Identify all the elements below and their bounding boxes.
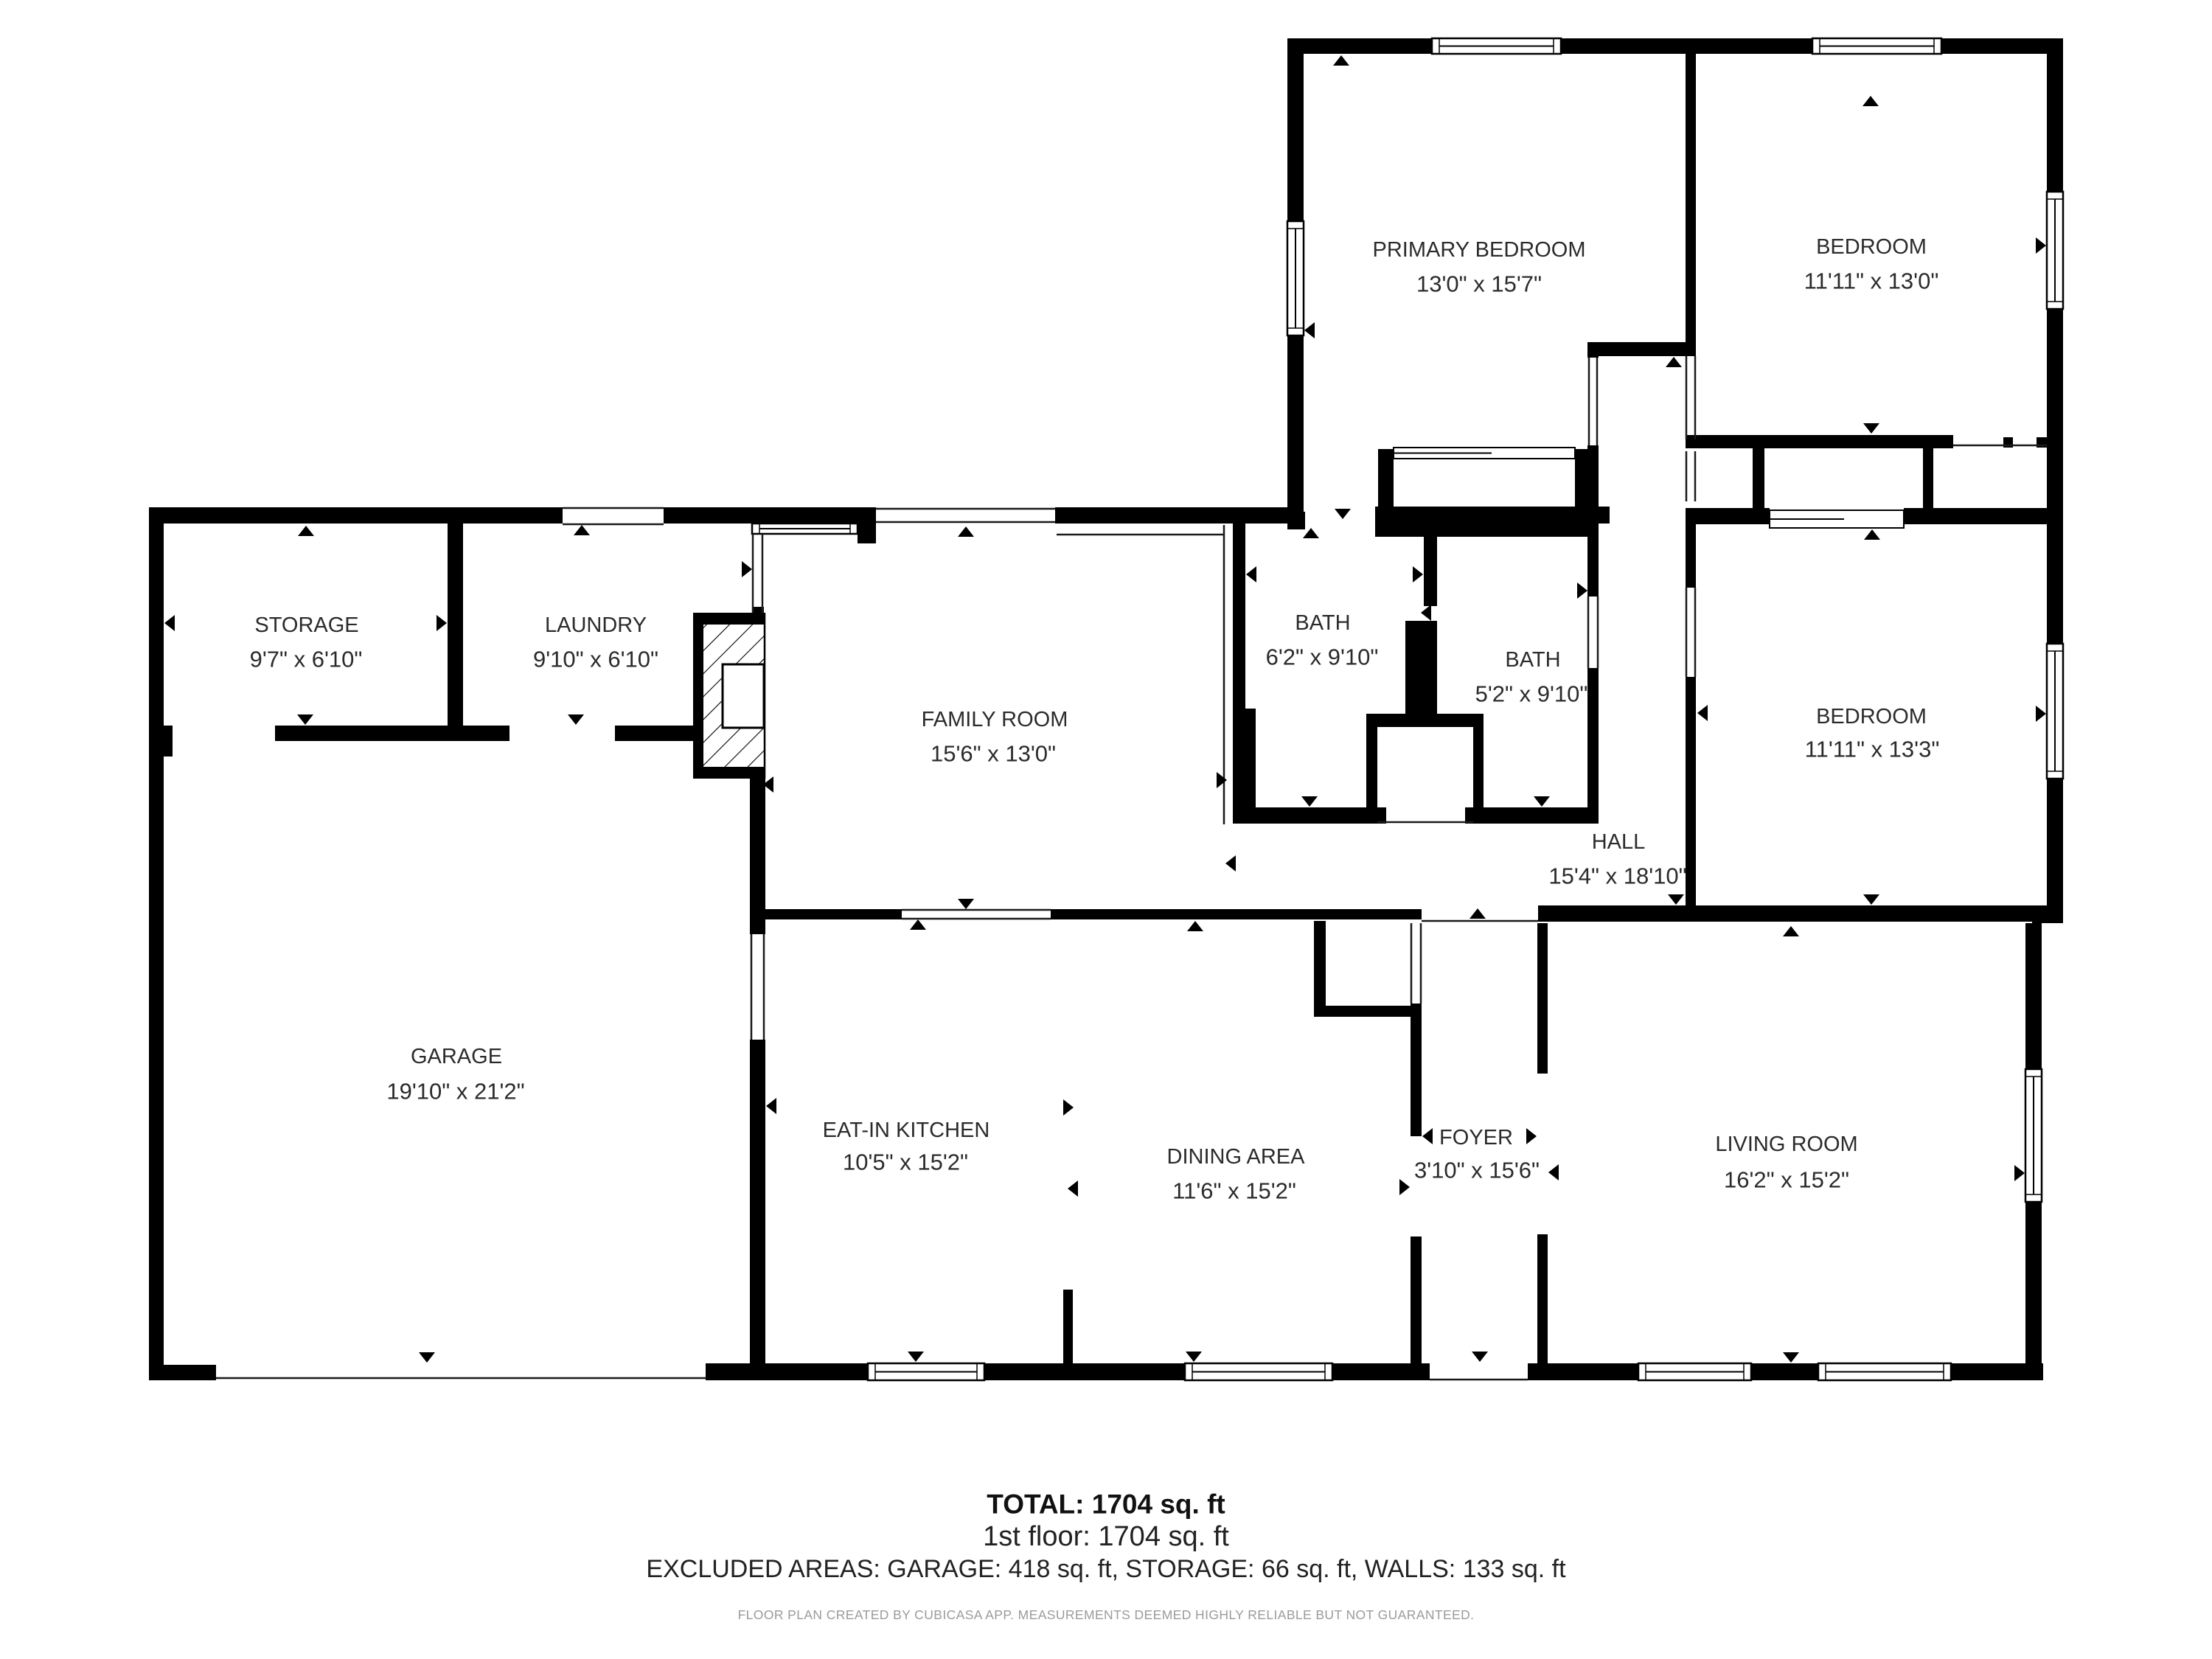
svg-text:HALL: HALL: [1592, 830, 1646, 854]
svg-text:3'10" x 15'6": 3'10" x 15'6": [1414, 1158, 1540, 1183]
svg-text:9'7" x 6'10": 9'7" x 6'10": [250, 647, 363, 672]
svg-text:9'10" x 6'10": 9'10" x 6'10": [533, 647, 658, 672]
svg-text:FAMILY ROOM: FAMILY ROOM: [922, 708, 1068, 731]
svg-text:GARAGE: GARAGE: [411, 1045, 502, 1068]
svg-text:STORAGE: STORAGE: [254, 613, 358, 637]
svg-text:6'2" x 9'10": 6'2" x 9'10": [1266, 644, 1379, 670]
svg-text:BATH: BATH: [1505, 648, 1560, 672]
svg-text:DINING AREA: DINING AREA: [1167, 1145, 1306, 1169]
svg-text:BEDROOM: BEDROOM: [1816, 235, 1927, 259]
svg-text:10'5" x 15'2": 10'5" x 15'2": [843, 1150, 968, 1175]
svg-text:EXCLUDED AREAS: GARAGE: 418 sq: EXCLUDED AREAS: GARAGE: 418 sq. ft, STOR…: [646, 1555, 1566, 1583]
svg-text:TOTAL: 1704 sq. ft: TOTAL: 1704 sq. ft: [987, 1489, 1225, 1520]
svg-text:15'6" x 13'0": 15'6" x 13'0": [931, 741, 1056, 767]
svg-text:LAUNDRY: LAUNDRY: [545, 613, 647, 637]
svg-text:FLOOR PLAN CREATED BY CUBICASA: FLOOR PLAN CREATED BY CUBICASA APP. MEAS…: [738, 1607, 1475, 1622]
svg-text:PRIMARY BEDROOM: PRIMARY BEDROOM: [1373, 238, 1586, 262]
svg-text:FOYER: FOYER: [1439, 1126, 1513, 1150]
svg-text:EAT-IN KITCHEN: EAT-IN KITCHEN: [823, 1119, 990, 1142]
svg-text:5'2" x 9'10": 5'2" x 9'10": [1475, 681, 1588, 707]
svg-text:BATH: BATH: [1295, 611, 1350, 635]
svg-text:13'0" x 15'7": 13'0" x 15'7": [1416, 271, 1542, 297]
svg-text:19'10" x 21'2": 19'10" x 21'2": [386, 1079, 524, 1105]
svg-text:LIVING ROOM: LIVING ROOM: [1715, 1133, 1857, 1156]
svg-text:11'6" x 15'2": 11'6" x 15'2": [1172, 1178, 1296, 1204]
svg-text:11'11" x 13'3": 11'11" x 13'3": [1805, 737, 1940, 762]
svg-text:16'2" x 15'2": 16'2" x 15'2": [1724, 1167, 1849, 1193]
svg-text:11'11" x 13'0": 11'11" x 13'0": [1804, 268, 1939, 294]
svg-text:15'4" x 18'10": 15'4" x 18'10": [1548, 863, 1686, 889]
svg-text:1st floor: 1704 sq. ft: 1st floor: 1704 sq. ft: [983, 1521, 1229, 1552]
svg-text:BEDROOM: BEDROOM: [1816, 705, 1927, 728]
